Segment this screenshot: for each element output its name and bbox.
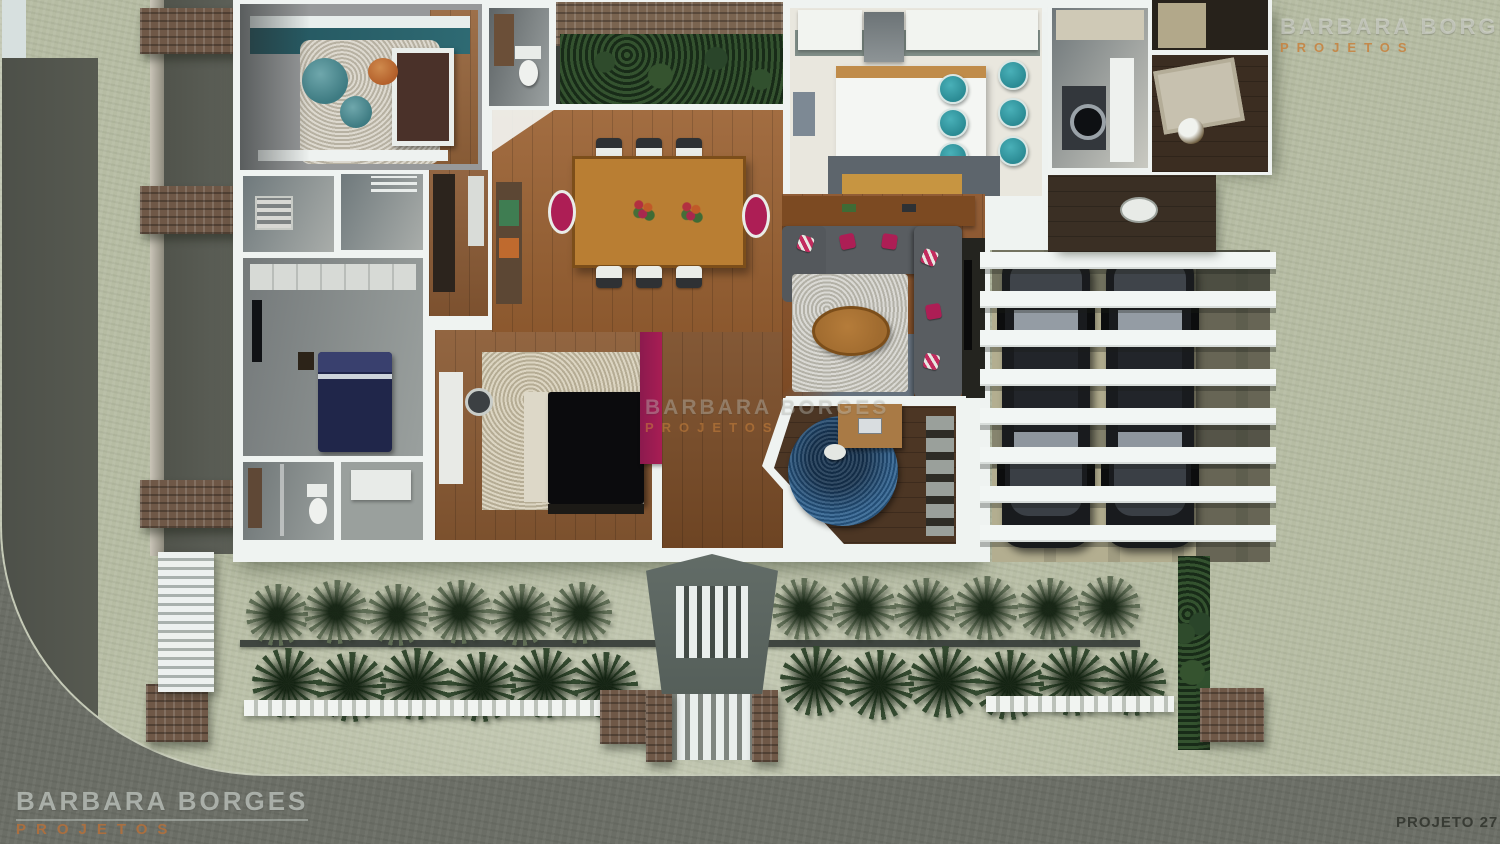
laundry-back-wall <box>1056 10 1144 40</box>
room-closet-a <box>243 176 334 252</box>
garden-plant <box>844 650 914 720</box>
room-bedroom-main <box>435 330 652 540</box>
watermark-title: BARBARA BORGES <box>1280 14 1500 40</box>
bar-stool <box>998 136 1028 166</box>
dining-table <box>572 156 746 268</box>
roof-deck-top-right <box>1152 0 1268 50</box>
closet-window <box>255 196 293 230</box>
garden-plant <box>366 584 428 646</box>
closet-ceiling-slats <box>371 176 417 192</box>
dining-chair <box>596 266 622 288</box>
deck-table-round <box>1120 197 1158 223</box>
brick-pillar <box>146 684 208 742</box>
laundry-counter <box>1110 58 1134 162</box>
bedroom-desk <box>439 372 463 484</box>
garden-plant <box>780 646 850 716</box>
desk-chair <box>465 388 493 416</box>
laundry-tub <box>351 470 411 500</box>
table-flowers <box>679 199 705 225</box>
garden-plant <box>772 578 834 640</box>
watermark-top-right: BARBARA BORGES PROJETOS <box>1280 14 1500 55</box>
watermark-center: BARBARA BORGES PROJETOS <box>645 396 889 435</box>
toilet-bowl <box>519 60 538 86</box>
garden-plant <box>908 646 980 718</box>
watermark-subtitle: PROJETOS <box>645 420 889 435</box>
garden-plant <box>894 578 956 640</box>
room-living <box>782 194 985 398</box>
left-boundary-shadow <box>2 58 98 774</box>
bath-vanity <box>494 14 514 66</box>
bed-foot-bench <box>548 504 644 514</box>
inner-boundary-shadow <box>162 0 240 554</box>
bed-navy <box>318 352 392 452</box>
decor-bowl <box>1178 118 1204 144</box>
sideboard <box>496 182 522 304</box>
brick-pillar <box>140 186 240 234</box>
courtyard-garden <box>556 2 783 104</box>
console-table <box>782 196 975 226</box>
floorplan-render: BARBARA BORGES PROJETOS BARBARA BORGES P… <box>0 0 1500 844</box>
side-deck <box>1048 175 1216 252</box>
project-label: PROJETO 27 <box>1396 814 1498 831</box>
garden-plant <box>1078 576 1140 638</box>
shower-glass <box>280 464 284 536</box>
kitchen-upper-cabinet <box>798 10 862 50</box>
table-flowers <box>631 197 657 223</box>
portico-pillar <box>646 690 672 762</box>
room-bedroom-navy <box>243 258 423 456</box>
garden-plant <box>832 576 896 640</box>
garden-plant <box>428 580 492 644</box>
toilet-tank <box>515 46 541 59</box>
shelf-white <box>468 176 484 246</box>
garden-walkway <box>244 700 642 716</box>
garden-plant <box>1018 578 1080 640</box>
sideboard-decor-green <box>499 200 519 226</box>
garden-walkway <box>986 696 1174 712</box>
bar-stool <box>938 74 968 104</box>
hallway-wood <box>662 332 783 548</box>
coffee-table-round <box>812 306 890 356</box>
deck-beige-block <box>1158 3 1206 48</box>
dining-end-seat <box>548 190 576 234</box>
console-decor <box>842 204 856 212</box>
bed-navy-sheet <box>318 374 392 379</box>
kitchen-island-wood-top <box>836 66 986 78</box>
louver-fence <box>158 552 214 692</box>
nursery-pouf-teal-small <box>340 96 372 128</box>
navy-nightstand <box>298 352 314 370</box>
room-nursery <box>240 4 482 170</box>
garden-plant <box>304 580 368 644</box>
room-closet-b <box>341 174 423 250</box>
bed-bench-white <box>524 392 548 502</box>
brick-pillar <box>1200 688 1264 742</box>
room-sitting <box>1152 55 1268 172</box>
portico-pillar <box>752 690 778 762</box>
study-chair <box>824 444 846 460</box>
kitchen-upper-cabinet <box>906 10 1038 50</box>
kitchen-range-hood <box>864 12 904 62</box>
portico-roof-slats <box>676 586 748 658</box>
navy-wardrobe <box>250 264 416 290</box>
watermark-subtitle: PROJETOS <box>1280 40 1500 55</box>
nursery-pouf-orange <box>368 58 398 85</box>
room-laundry <box>1052 8 1148 168</box>
ceiling-beam <box>492 110 554 152</box>
nursery-wall-shade <box>240 4 310 170</box>
room-bath-left <box>243 462 334 540</box>
garden-plant <box>490 584 552 646</box>
sofa-pillow <box>881 233 898 250</box>
brick-pillar <box>140 480 240 528</box>
garden-plant <box>954 576 1018 640</box>
toilet-tank <box>307 484 327 497</box>
room-closet-hall <box>429 170 488 316</box>
toilet-bowl <box>309 498 327 524</box>
washer-door <box>1070 104 1106 140</box>
bed-black <box>548 392 644 504</box>
dining-end-seat <box>742 194 770 238</box>
dining-chair <box>636 266 662 288</box>
kitchen-wood-bar <box>842 174 962 196</box>
room-bath-small <box>489 8 549 106</box>
watermark-title: BARBARA BORGES <box>16 786 308 821</box>
watermark-bottom-left: BARBARA BORGES PROJETOS <box>16 786 308 838</box>
watermark-title: BARBARA BORGES <box>645 396 889 420</box>
room-kitchen <box>790 8 1042 196</box>
garage-pergola-slats <box>980 252 1276 564</box>
courtyard-plants <box>560 34 783 104</box>
sideboard-decor-orange <box>499 238 519 258</box>
study-shelf <box>926 416 954 536</box>
dark-wardrobe <box>433 174 455 292</box>
boundary-wall <box>150 0 164 556</box>
dining-chair <box>676 266 702 288</box>
kitchen-fridge <box>793 92 815 136</box>
room-service-hall <box>341 462 423 540</box>
brick-pillar <box>140 8 240 54</box>
nursery-crib <box>392 48 454 146</box>
garden-plant <box>246 584 308 646</box>
sofa-pillow <box>839 233 857 251</box>
bar-stool <box>998 98 1028 128</box>
bar-stool <box>998 60 1028 90</box>
tv-screen <box>964 260 972 350</box>
bed-navy-pillows <box>318 352 392 372</box>
washing-machine <box>1062 86 1106 150</box>
sofa-pillow <box>925 303 942 320</box>
garden-plant <box>550 582 612 644</box>
portico-roof <box>646 554 778 694</box>
watermark-subtitle: PROJETOS <box>16 821 308 838</box>
console-decor <box>902 204 916 212</box>
bar-stool <box>938 108 968 138</box>
navy-tv-panel <box>252 300 262 362</box>
room-dining <box>492 110 783 332</box>
bath-vanity <box>248 468 262 528</box>
